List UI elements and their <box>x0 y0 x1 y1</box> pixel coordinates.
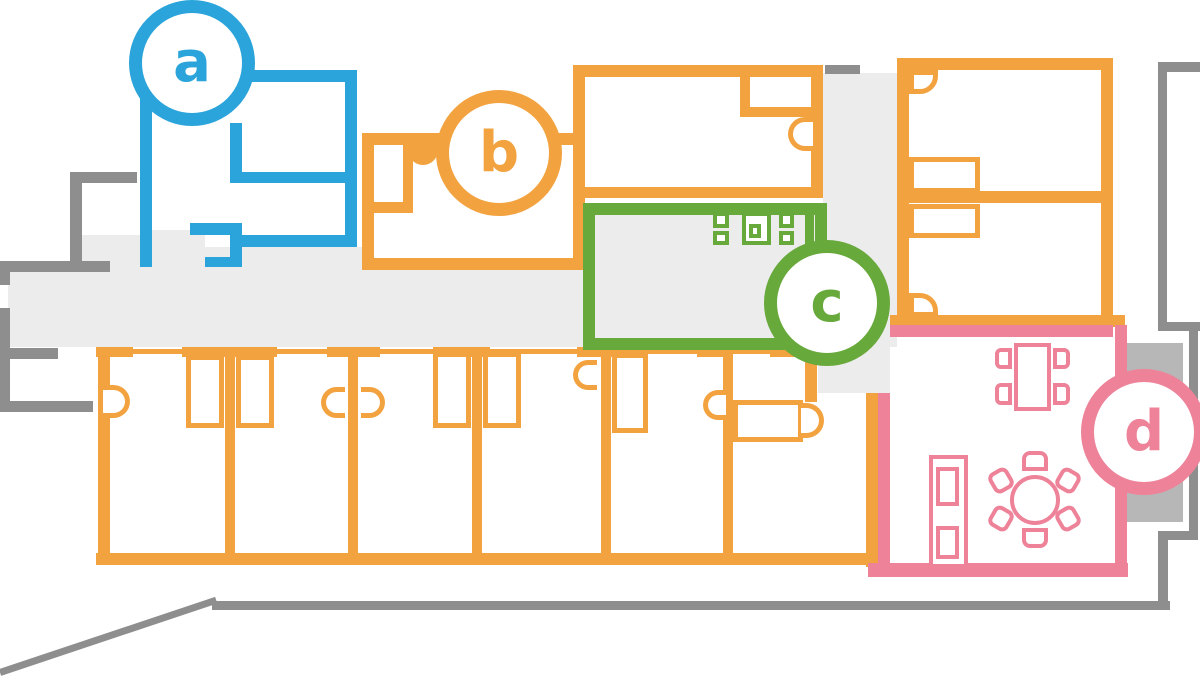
door-arc <box>801 403 824 438</box>
badge-c-label: c <box>810 275 843 331</box>
bed <box>909 204 980 238</box>
room-divider-wall <box>472 357 482 553</box>
room-d-wall <box>878 393 890 577</box>
door-arc <box>361 387 385 418</box>
exterior-wall <box>0 308 10 412</box>
round-table <box>1010 475 1060 525</box>
chair <box>1022 451 1048 471</box>
kitchen-unit <box>805 212 814 245</box>
chair <box>995 383 1012 405</box>
badge-a-label: a <box>173 35 211 91</box>
exterior-wall <box>1158 62 1167 322</box>
door-arc <box>703 390 726 420</box>
room-a-wall <box>233 172 353 183</box>
badge-a[interactable]: a <box>129 0 255 126</box>
room-a-wall <box>190 223 242 235</box>
door-arc <box>573 360 597 390</box>
badge-d[interactable]: d <box>1081 369 1200 495</box>
chair <box>995 348 1012 369</box>
room-divider-wall <box>225 357 235 553</box>
bed <box>733 400 803 442</box>
door-arc <box>788 117 813 151</box>
room-b-wall <box>362 258 575 270</box>
door-arc <box>909 70 938 94</box>
kitchen-unit <box>779 231 794 245</box>
room-wall <box>897 58 1113 70</box>
room-b-closet-wall <box>374 202 413 213</box>
exterior-wall <box>10 348 58 359</box>
chair <box>1053 348 1070 369</box>
bed <box>236 355 274 428</box>
room-divider-wall <box>723 357 733 553</box>
room-divider-wall <box>601 357 611 553</box>
room-wall <box>96 553 880 565</box>
exterior-wall <box>0 261 10 285</box>
exterior-wall <box>825 65 860 74</box>
room-d-wall <box>890 325 1113 337</box>
room-a-wall <box>345 70 357 247</box>
exterior-wall <box>1158 322 1200 331</box>
corridor-fill <box>148 230 205 268</box>
kitchen-unit <box>713 212 729 228</box>
door-arc <box>909 293 938 317</box>
floor-plan: a b c d <box>0 0 1200 683</box>
corridor-wall <box>327 347 380 357</box>
sideboard-door <box>936 467 959 506</box>
chair <box>1022 528 1048 548</box>
room-c-wall <box>583 203 595 350</box>
door-arc <box>321 387 345 418</box>
exterior-wall <box>0 261 110 272</box>
bed <box>186 355 224 428</box>
room-d-wall <box>868 563 1128 577</box>
exterior-wall <box>212 601 1170 610</box>
room-divider-wall <box>866 393 878 567</box>
chair <box>1053 383 1070 405</box>
room-a-wall <box>205 257 232 267</box>
room-wall <box>1101 58 1113 320</box>
badge-d-label: d <box>1124 404 1164 460</box>
corridor-wall <box>96 347 133 357</box>
room-wall <box>98 347 110 565</box>
kitchen-unit <box>713 231 729 245</box>
room-wall <box>578 65 823 77</box>
room-wall <box>897 58 909 327</box>
exterior-wall <box>1158 531 1168 605</box>
room-b-wall <box>362 133 374 270</box>
bed <box>612 353 648 433</box>
bed <box>909 157 980 193</box>
sideboard-door <box>936 526 959 559</box>
room-divider-wall <box>348 357 358 553</box>
badge-b-label: b <box>479 125 519 181</box>
kitchen-unit <box>749 224 761 238</box>
room-wall <box>740 107 811 117</box>
bed <box>433 352 471 428</box>
door-arc <box>103 385 130 418</box>
dining-table <box>1014 343 1051 411</box>
exterior-wall-diagonal <box>0 597 217 676</box>
room-a-wall <box>242 235 357 247</box>
exterior-wall <box>70 172 82 272</box>
kitchen-unit <box>779 212 794 228</box>
badge-c[interactable]: c <box>764 240 890 366</box>
bed <box>483 352 521 428</box>
exterior-wall <box>0 401 93 412</box>
badge-b[interactable]: b <box>436 90 562 216</box>
room-wall <box>578 187 823 198</box>
